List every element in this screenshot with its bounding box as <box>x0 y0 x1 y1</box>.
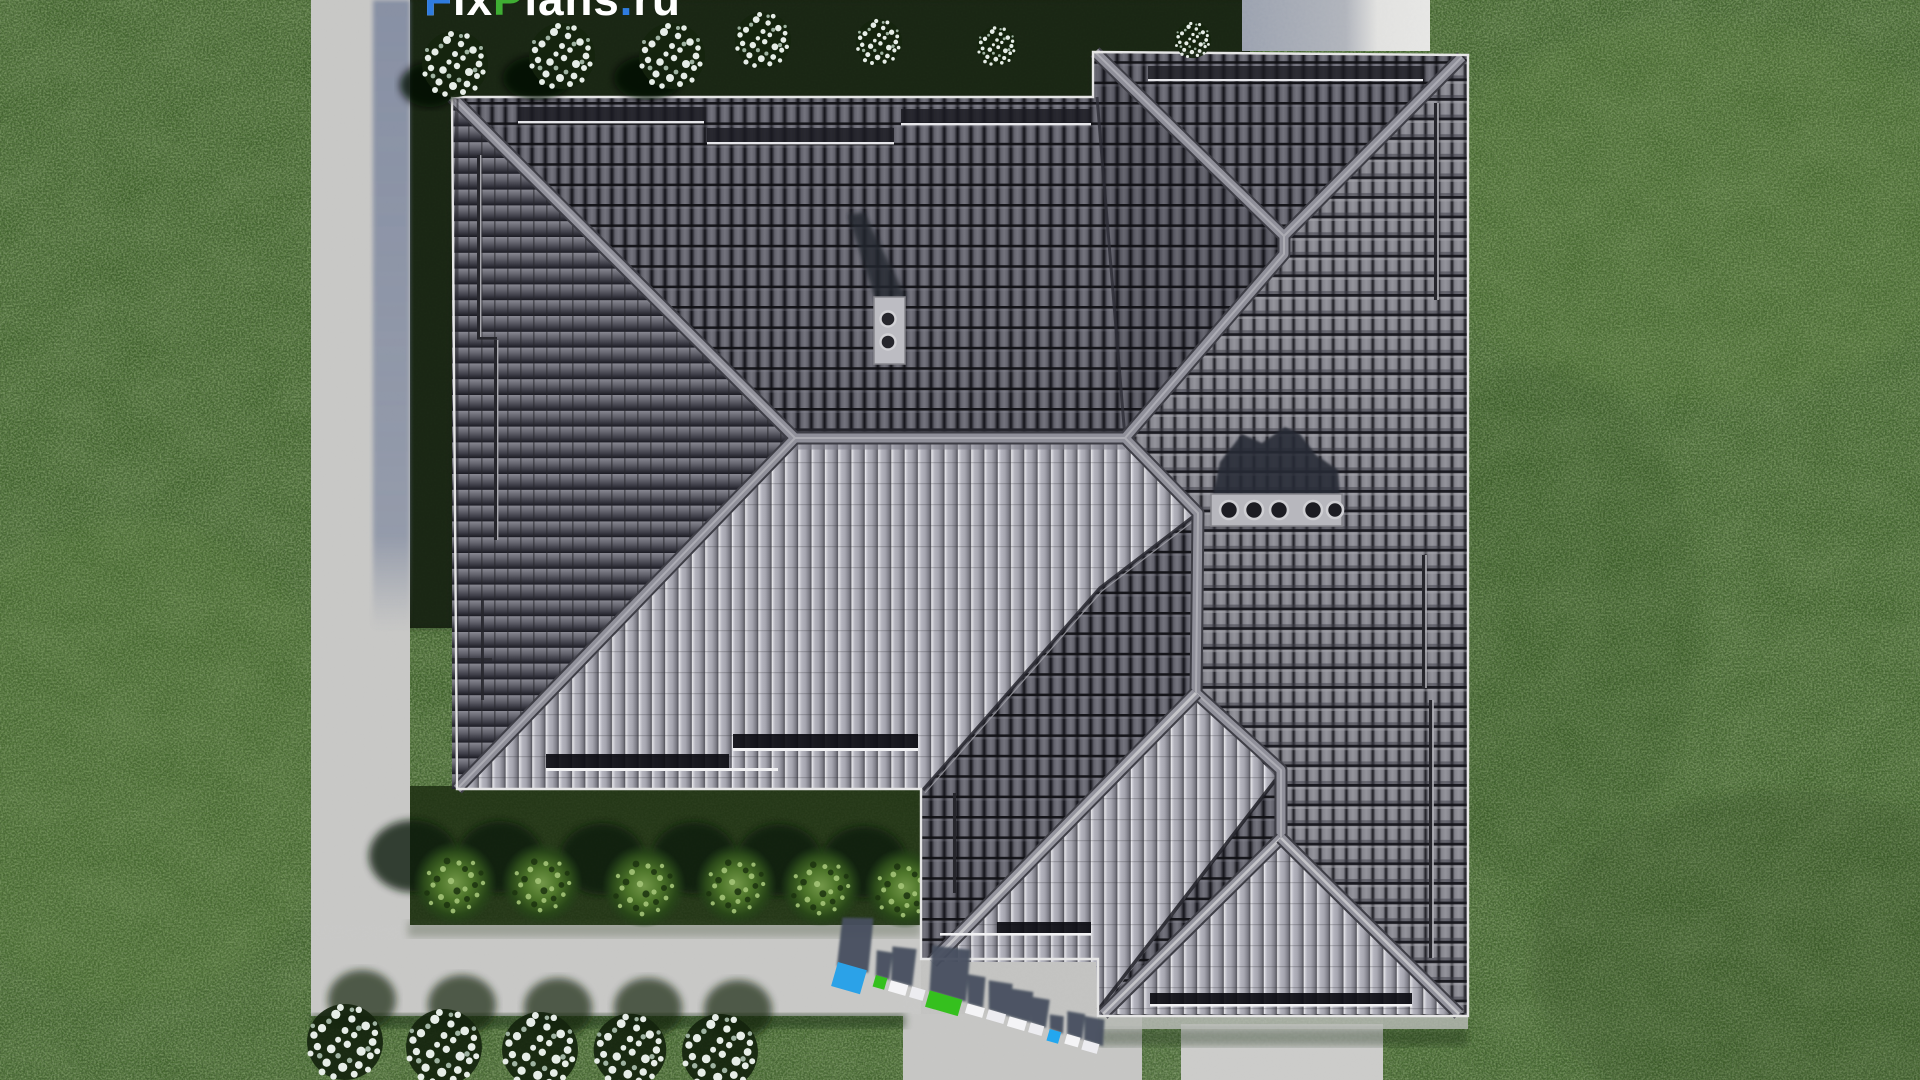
svg-text:FixPlans.ru: FixPlans.ru <box>424 0 681 25</box>
svg-text:F: F <box>424 0 453 25</box>
